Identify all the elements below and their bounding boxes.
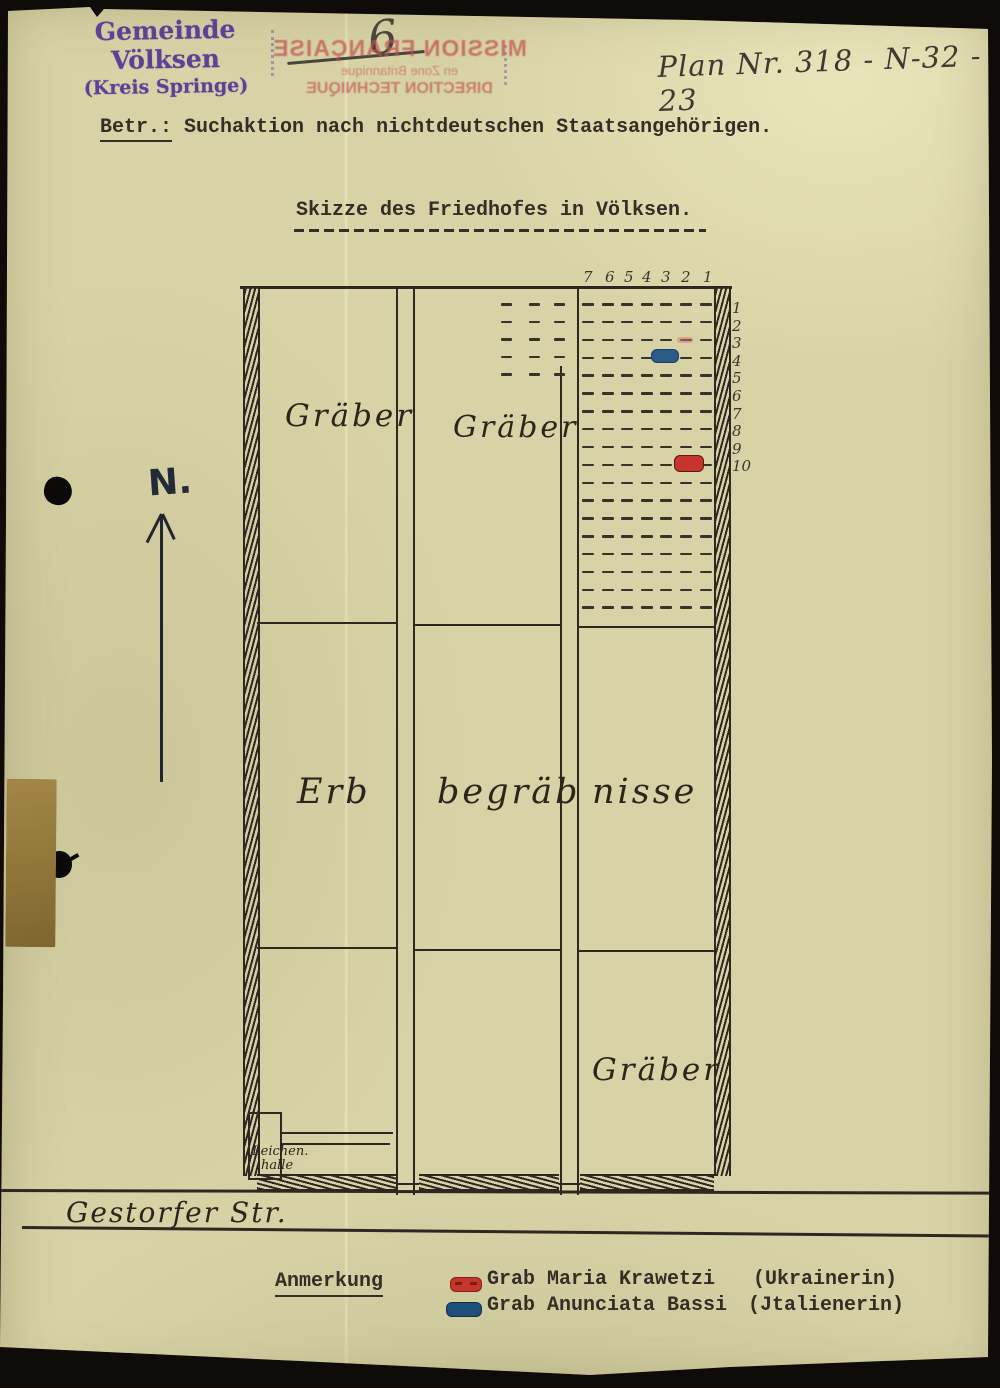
grave-mark-blue	[651, 349, 679, 363]
grid-dash	[700, 535, 712, 538]
punch-hole-tear	[70, 853, 80, 861]
grid-dash	[602, 571, 614, 574]
grid-dash	[641, 571, 653, 574]
grid-dash	[602, 589, 614, 592]
grid-dash	[680, 517, 692, 520]
grid-dash	[641, 482, 653, 485]
grid-dash	[602, 553, 614, 556]
grid-dash	[660, 499, 672, 502]
grid-dash	[680, 321, 692, 324]
grid-dash	[582, 374, 594, 377]
grid-dash	[621, 482, 633, 485]
grid-dash	[680, 606, 692, 609]
grid-dash	[582, 589, 594, 592]
legend-item-2-nationality: (Jtalienerin)	[748, 1294, 904, 1317]
grid-dash	[582, 321, 594, 324]
grid-dash	[700, 553, 712, 556]
map-border-bottom	[419, 1174, 559, 1191]
grid-dash	[582, 446, 594, 449]
grid-dash	[621, 392, 633, 395]
grid-dash	[700, 589, 712, 592]
municipality-stamp: Gemeinde Völksen (Kreis Springe)	[47, 14, 283, 100]
grid-dash	[660, 464, 672, 467]
grid-dash	[582, 535, 594, 538]
legend-item-1-nationality: (Ukrainerin)	[753, 1268, 897, 1291]
grid-dash	[641, 553, 653, 556]
grid-column-number: 7	[583, 268, 593, 286]
bleed-line1: MISSION FRANÇAISE	[262, 34, 537, 63]
grid-dash	[621, 321, 633, 324]
map-border-left	[243, 288, 260, 1176]
north-label: N.	[147, 461, 194, 505]
grid-dash	[680, 410, 692, 413]
grid-dash	[700, 482, 712, 485]
map-border-top	[240, 286, 732, 289]
grid-dash	[621, 553, 633, 556]
grid-dash	[582, 482, 594, 485]
path-gap-stub	[396, 1183, 419, 1185]
grid-dash	[700, 410, 712, 413]
grid-dash	[621, 517, 633, 520]
grid-dash	[641, 517, 653, 520]
grid-dash	[602, 517, 614, 520]
street-label: Gestorfer Str.	[66, 1196, 288, 1229]
grid-dash	[602, 392, 614, 395]
grid-dash	[660, 517, 672, 520]
grid-dash	[621, 357, 633, 360]
grid-dash	[582, 606, 594, 609]
grid-dash	[501, 356, 512, 359]
grid-dash	[680, 535, 692, 538]
section-label-erb: Erb	[297, 772, 371, 812]
title-dashed-underline	[294, 229, 706, 232]
grid-dash	[680, 428, 692, 431]
grid-dash	[582, 303, 594, 306]
grid-dash	[602, 499, 614, 502]
subject-text: Suchaktion nach nichtdeutschen Staatsang…	[184, 116, 772, 139]
legend-item-1-text: Grab Maria Krawetzi	[487, 1268, 715, 1291]
grid-dash	[582, 499, 594, 502]
section-line	[257, 947, 396, 949]
section-line	[257, 622, 396, 624]
grid-dash	[621, 374, 633, 377]
grid-dash	[641, 464, 653, 467]
grid-dash	[680, 589, 692, 592]
grid-dash	[641, 392, 653, 395]
grid-dash	[641, 303, 653, 306]
scanned-document: Gemeinde Völksen (Kreis Springe) 6 MISSI…	[0, 0, 1000, 1388]
mortuary-label: Leichen. halle	[252, 1145, 308, 1174]
grid-dash	[602, 535, 614, 538]
grid-dash	[660, 589, 672, 592]
sketch-title: Skizze des Friedhofes in Völksen.	[296, 199, 692, 222]
grid-dash	[602, 428, 614, 431]
grid-dash	[602, 339, 614, 342]
grid-dash	[621, 428, 633, 431]
grid-column-number: 5	[624, 268, 634, 286]
grid-dash	[680, 446, 692, 449]
grid-dash	[680, 571, 692, 574]
grid-dash	[641, 410, 653, 413]
mortuary-line	[280, 1132, 393, 1134]
grid-dash	[602, 482, 614, 485]
grid-dash	[529, 356, 540, 359]
section-label-graves-n-center: Gräber	[453, 410, 579, 445]
grid-dash	[602, 410, 614, 413]
grid-dash	[582, 392, 594, 395]
grid-column-number: 6	[605, 268, 615, 286]
section-label-begraeb: begräb	[437, 772, 581, 812]
grid-dash	[680, 374, 692, 377]
subject-line: Betr.: Suchaktion nach nichtdeutschen St…	[100, 116, 772, 139]
bleed-line3: DIRECTION TECHNIQUE	[262, 79, 537, 99]
grid-row-number: 6	[732, 387, 742, 405]
grid-dash	[621, 589, 633, 592]
grid-dash	[582, 517, 594, 520]
section-line	[415, 949, 560, 951]
grid-column-number: 4	[642, 268, 652, 286]
stamp-line1: Gemeinde Völksen	[47, 14, 283, 76]
legend-heading: Anmerkung	[275, 1270, 383, 1297]
grid-dash	[621, 571, 633, 574]
grid-dash	[700, 571, 712, 574]
grid-dash	[501, 303, 512, 306]
grid-dash	[680, 553, 692, 556]
grid-dash	[660, 339, 672, 342]
grid-dash	[621, 303, 633, 306]
grid-dash	[700, 499, 712, 502]
grid-row-number: 7	[732, 405, 742, 423]
grid-dash	[621, 446, 633, 449]
grid-dash	[621, 499, 633, 502]
grid-dash	[501, 338, 512, 341]
tape	[5, 779, 56, 947]
grid-dash	[602, 606, 614, 609]
grid-row-number: 3	[732, 334, 742, 352]
section-line	[579, 626, 715, 628]
section-label-graves-se: Gräber	[592, 1052, 721, 1088]
grid-dash	[700, 339, 712, 342]
grid-dash	[529, 321, 540, 324]
grid-dash	[700, 446, 712, 449]
grid-dash	[660, 410, 672, 413]
section-label-nisse: nisse	[592, 772, 697, 812]
grid-dash	[700, 606, 712, 609]
grid-row-number: 5	[732, 369, 742, 387]
grid-dash	[602, 374, 614, 377]
grid-dash	[641, 428, 653, 431]
grid-dash	[554, 321, 565, 324]
grid-dash	[660, 482, 672, 485]
grid-row-number: 8	[732, 422, 742, 440]
grid-dash	[660, 535, 672, 538]
grid-dash	[641, 499, 653, 502]
grid-dash	[641, 339, 653, 342]
subject-label: Betr.:	[100, 116, 172, 142]
grid-column-number: 1	[703, 268, 713, 286]
grid-dash	[621, 410, 633, 413]
grid-dash	[501, 373, 512, 376]
grid-dash	[621, 464, 633, 467]
grid-row-number: 2	[732, 317, 742, 335]
grid-dash	[700, 303, 712, 306]
grid-dash	[582, 410, 594, 413]
grid-dash	[660, 392, 672, 395]
grid-dash	[602, 357, 614, 360]
grid-dash	[680, 482, 692, 485]
section-line	[579, 950, 715, 952]
grid-dash	[529, 338, 540, 341]
north-arrow-icon	[160, 516, 163, 782]
grid-dash	[602, 446, 614, 449]
punch-hole	[41, 474, 75, 508]
grid-dash	[641, 535, 653, 538]
grid-dash	[660, 303, 672, 306]
grid-dash	[582, 339, 594, 342]
grid-dash	[602, 464, 614, 467]
legend-red-grave-icon	[450, 1277, 482, 1292]
grid-dash	[529, 373, 540, 376]
grid-dash	[700, 517, 712, 520]
grid-dash	[641, 589, 653, 592]
grave-mark-faint	[677, 337, 693, 343]
grid-dash	[641, 321, 653, 324]
grid-dash	[680, 499, 692, 502]
grid-dash	[660, 606, 672, 609]
map-border-bottom	[580, 1174, 714, 1191]
grid-row-number: 4	[732, 352, 742, 370]
grid-dash	[660, 374, 672, 377]
grid-dash	[641, 446, 653, 449]
grid-dash	[680, 303, 692, 306]
grid-dash	[641, 374, 653, 377]
street-line-upper	[0, 1189, 1000, 1194]
north-arrowhead-right	[161, 513, 176, 540]
grid-dash	[582, 428, 594, 431]
grid-dash	[582, 571, 594, 574]
grid-dash	[582, 357, 594, 360]
grid-dash	[700, 428, 712, 431]
grid-column-number: 3	[661, 268, 671, 286]
document-page: Gemeinde Völksen (Kreis Springe) 6 MISSI…	[0, 0, 1000, 1388]
grid-dash	[660, 553, 672, 556]
section-line	[415, 624, 560, 626]
grid-dash	[700, 374, 712, 377]
grid-dash	[660, 428, 672, 431]
grid-dash	[621, 339, 633, 342]
grid-dash	[621, 535, 633, 538]
grid-dash	[700, 357, 712, 360]
grid-dash	[660, 571, 672, 574]
grid-dash	[501, 321, 512, 324]
grid-row-number: 10	[732, 457, 751, 475]
grid-dash	[680, 357, 692, 360]
grid-dash	[582, 553, 594, 556]
grid-dash	[602, 303, 614, 306]
grid-dash	[660, 321, 672, 324]
grid-dash	[700, 392, 712, 395]
grid-dash	[554, 338, 565, 341]
grave-mark-red	[674, 455, 704, 472]
grid-dash	[554, 356, 565, 359]
bleed-line2: en Zone Britannique	[262, 63, 537, 79]
grid-dash	[554, 303, 565, 306]
grid-dash	[529, 303, 540, 306]
grid-dash	[660, 446, 672, 449]
stamp-line2: (Kreis Springe)	[48, 74, 283, 100]
legend-item-2-text: Grab Anunciata Bassi	[487, 1294, 727, 1317]
grid-column-number: 2	[681, 268, 691, 286]
grid-dash	[554, 373, 565, 376]
section-label-graves-nw: Gräber	[285, 398, 414, 434]
grid-row-number: 9	[732, 440, 742, 458]
grid-row-number: 1	[732, 299, 742, 317]
grid-dash	[641, 606, 653, 609]
grid-dash	[582, 464, 594, 467]
plan-number: Plan Nr. 318 - N-32 - 23	[657, 38, 1000, 118]
map-border-right	[714, 288, 731, 1176]
grid-dash	[621, 606, 633, 609]
grid-dash	[680, 392, 692, 395]
bleedthrough-stamp: MISSION FRANÇAISE en Zone Britannique DI…	[262, 34, 537, 99]
grid-dash	[602, 321, 614, 324]
grid-dash	[700, 321, 712, 324]
legend-blue-grave-icon	[446, 1302, 482, 1317]
